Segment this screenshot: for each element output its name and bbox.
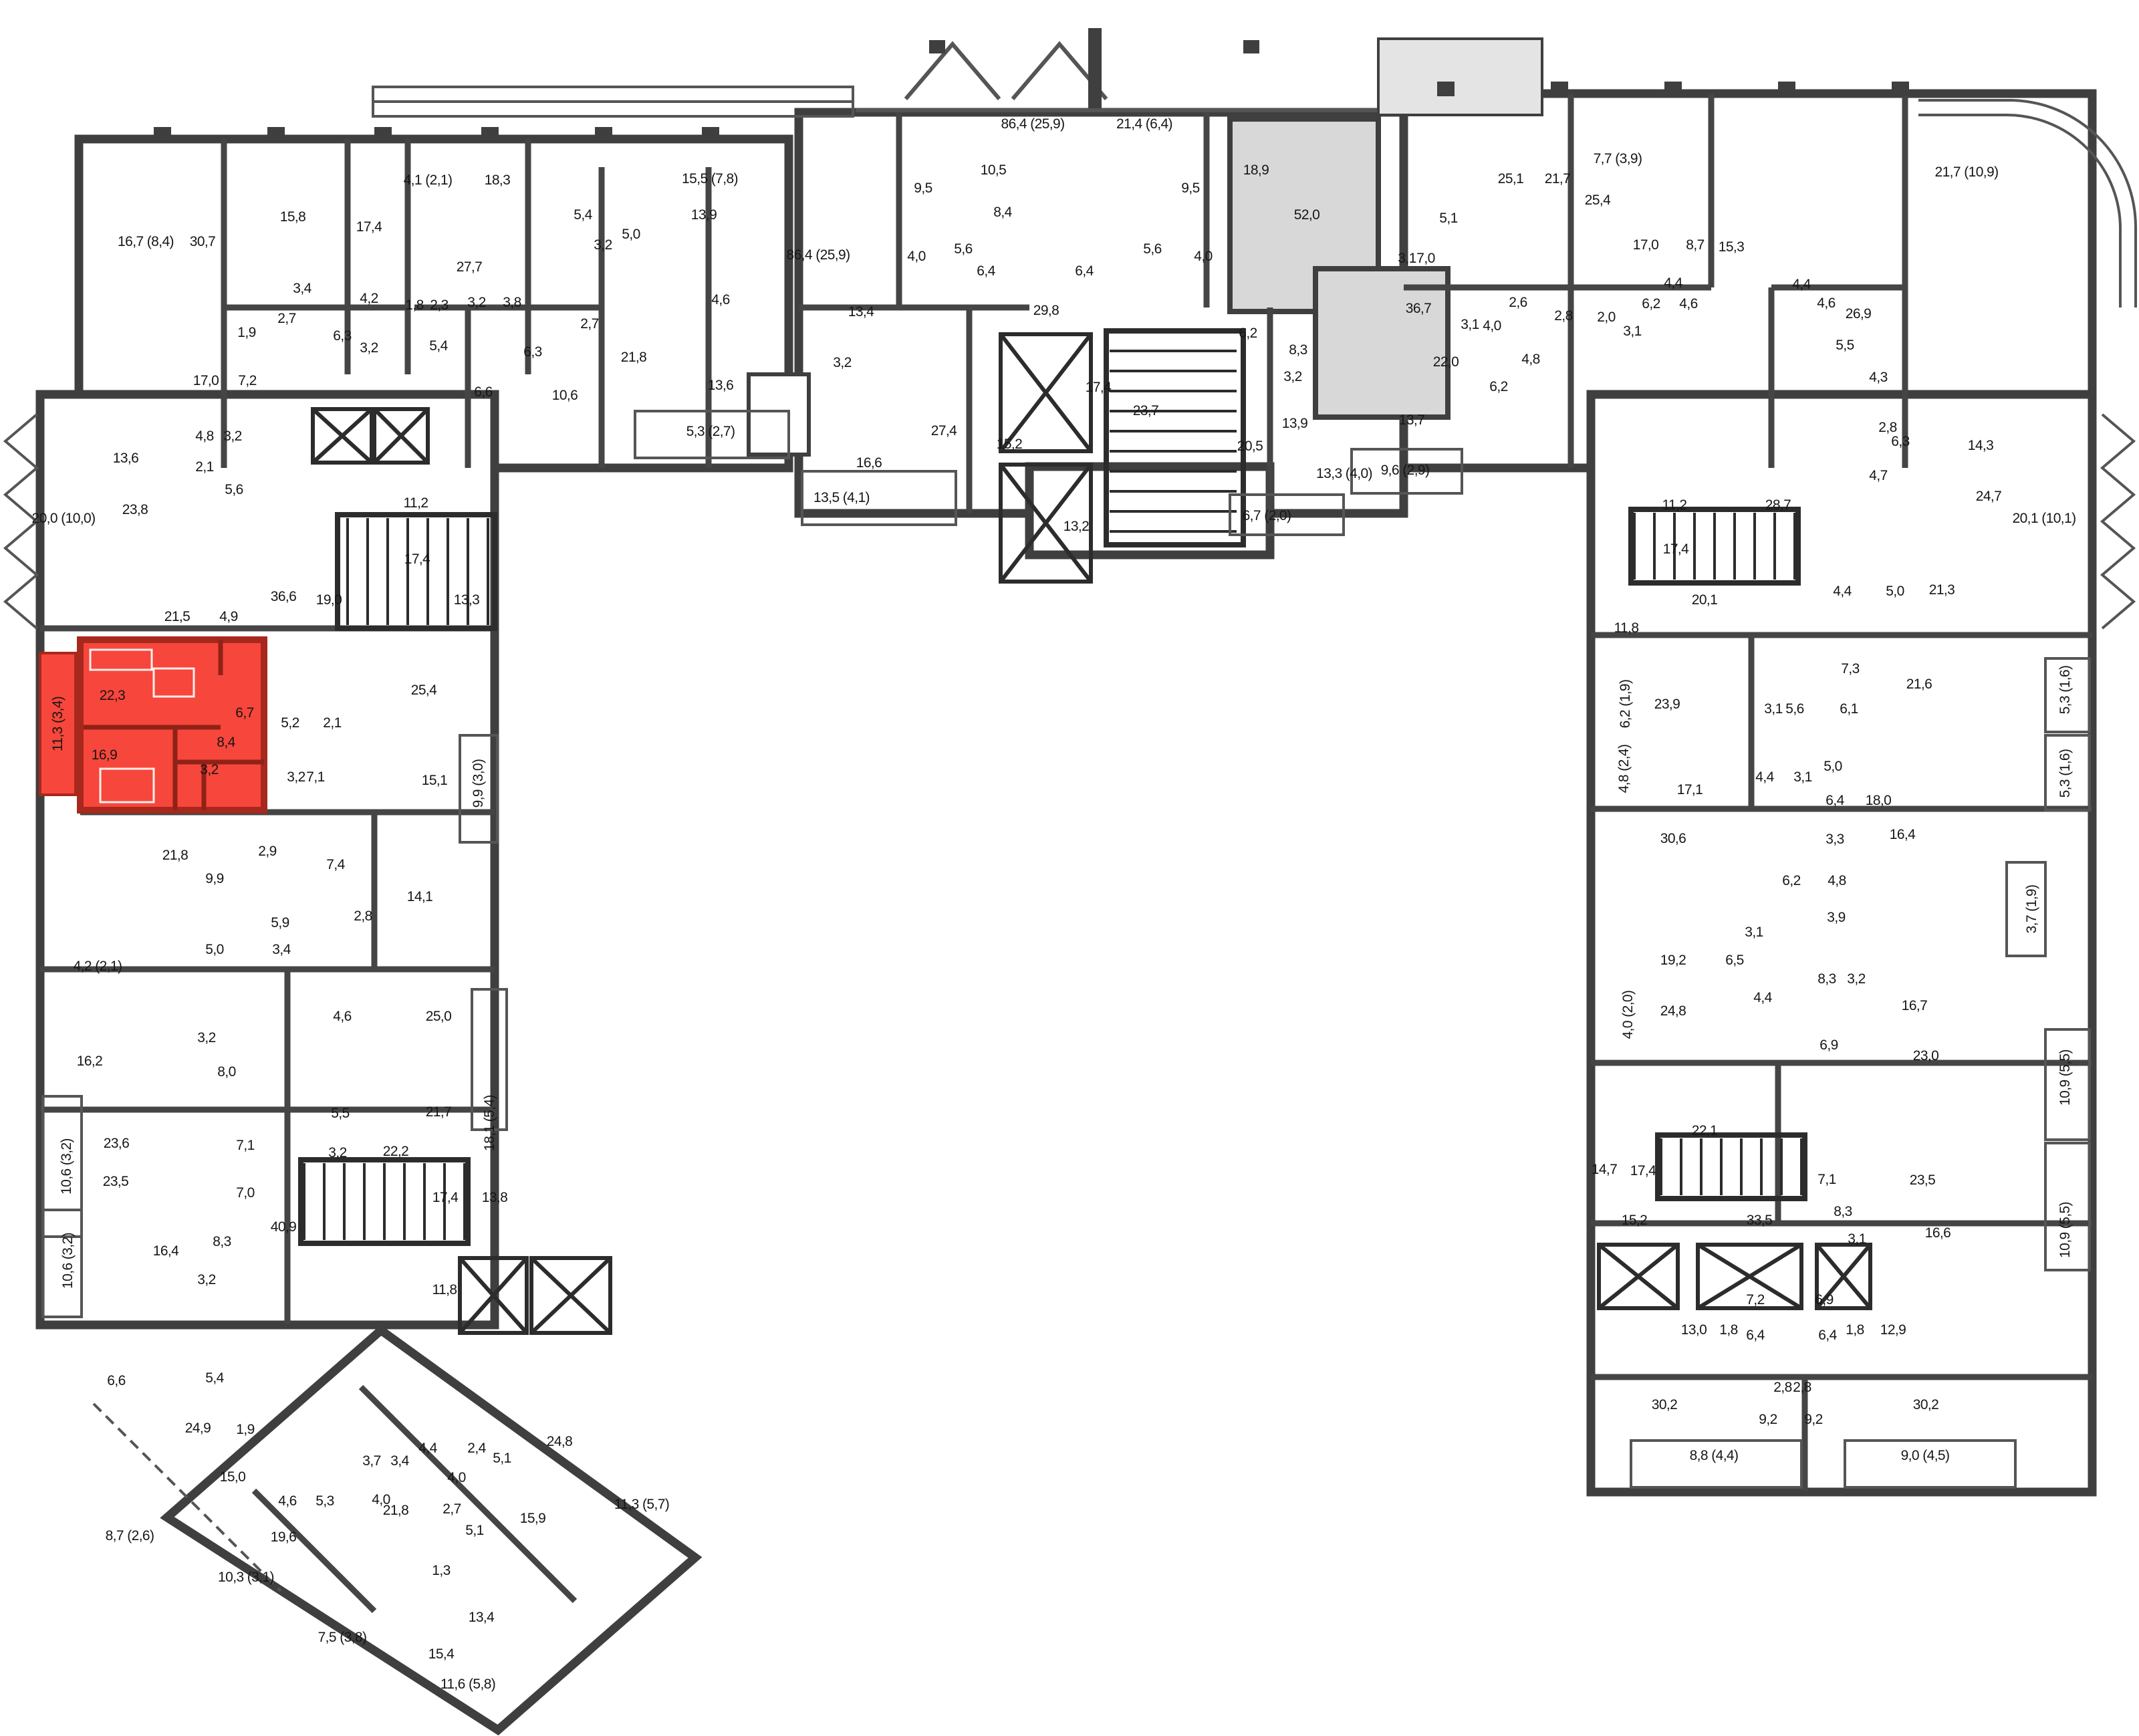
area-label: 17,0 [193,373,219,389]
area-label: 16,4 [1890,827,1915,843]
area-label: 2,1 [323,715,341,731]
area-label: 5,2 [281,715,299,731]
area-label: 4,6 [333,1009,351,1025]
area-label: 17,4 [432,1190,458,1206]
area-label: 15,0 [220,1469,245,1485]
area-label: 27,7 [457,259,482,275]
area-label: 86,4 (25,9) [787,247,850,263]
area-label: 23,6 [104,1136,129,1152]
area-label: 2,3 [430,297,448,314]
area-label: 30,7 [190,234,215,250]
area-label: 30,2 [1652,1397,1677,1413]
area-label: 18,1 (5,4) [482,1095,498,1151]
area-label: 19,2 [1660,953,1686,969]
area-label: 36,7 [1406,301,1431,317]
area-label: 11,8 [1614,620,1639,636]
area-label: 33,5 [1747,1213,1772,1229]
area-label: 16,4 [153,1243,178,1259]
area-label: 5,6 [1143,241,1161,257]
area-label: 29,8 [1033,303,1059,319]
area-label: 16,9 [92,747,117,763]
area-label: 5,9 [271,915,289,931]
area-label: 3,2 [197,1272,215,1288]
area-label: 3,2 [200,762,218,778]
area-label: 10,5 [981,162,1006,178]
area-label: 9,5 [1181,180,1199,197]
area-label: 5,6 [1785,701,1803,717]
area-label: 25,4 [411,683,436,699]
area-label: 4,4 [1753,990,1771,1006]
area-label: 3,8 [503,295,521,311]
area-label: 24,8 [1660,1003,1686,1019]
area-label: 9,2 [1804,1412,1822,1428]
area-label: 4,8 [1828,873,1846,889]
area-label: 7,0 [236,1185,254,1201]
area-label: 5,0 [205,942,223,958]
area-label: 2,7 [580,316,598,332]
area-label: 7,5 (3,8) [318,1630,367,1646]
area-label: 21,6 [1906,676,1932,693]
area-label: 3,2 [1283,369,1301,385]
area-label: 6,2 [1782,873,1800,889]
area-label: 3,9 [1827,910,1845,926]
area-label: 8,4 [217,735,235,751]
area-label: 16,2 [77,1053,102,1070]
area-label: 17,0 [1633,237,1658,253]
area-label: 3,2 [833,355,851,371]
area-label: 13,8 [482,1190,507,1206]
area-label: 8,3 [213,1234,231,1250]
area-label: 4,4 [1792,277,1810,293]
area-label: 9,0 (4,5) [1901,1448,1950,1464]
area-label: 25,0 [426,1009,451,1025]
area-label: 1,8 [1846,1322,1864,1338]
area-label: 6,9 [1819,1037,1838,1053]
area-label: 4,3 [1869,370,1887,386]
area-label: 2,4 [467,1441,485,1457]
area-label: 15,4 [428,1646,454,1662]
area-label: 3,2 [328,1145,346,1161]
area-label: 15,8 [280,209,305,225]
area-label: 6,5 [1725,953,1743,969]
area-label: 4,9 [219,609,237,625]
area-label: 7,2 [238,373,256,389]
area-label: 22,1 [1692,1123,1717,1139]
area-label: 6,4 [977,263,995,279]
area-label: 20,5 [1237,439,1263,455]
area-label: 3,4 [293,281,311,297]
area-label: 5,4 [205,1370,223,1386]
area-label: 23,0 [1913,1048,1938,1064]
area-label: 21,8 [162,848,188,864]
area-label: 3,7 (1,9) [2024,885,2040,934]
area-label: 8,3 [1817,971,1836,987]
area-label: 13,6 [113,451,138,467]
area-label: 21,7 [426,1104,451,1120]
area-label: 13,4 [848,304,874,320]
area-label: 4,0 [1483,318,1501,334]
area-label: 5,0 [622,227,640,243]
area-label: 5,0 [1886,584,1904,600]
area-label: 17,1 [1677,782,1703,798]
area-label: 7,1 [236,1138,254,1154]
area-label: 2,8 [1554,308,1572,324]
area-label: 5,1 [465,1523,483,1539]
area-label: 1,8 [1719,1322,1737,1338]
area-label: 8,3 [1834,1204,1852,1220]
area-label: 3,2 [360,340,378,356]
area-label: 4,4 [1755,769,1773,785]
area-label: 1,8 [405,297,423,314]
area-label: 4,4 [418,1441,436,1457]
area-label: 4,6 [1817,295,1835,312]
area-label: 86,4 (25,9) [1001,116,1065,132]
area-label: 6,4 [1826,793,1844,809]
area-label: 7,2 [1746,1292,1764,1308]
area-label: 25,1 [1498,171,1523,187]
area-label: 15,2 [1622,1213,1647,1229]
area-label: 4,7 [1869,468,1887,484]
area-label: 13,2 [1063,519,1089,535]
area-label: 22,2 [383,1144,408,1160]
area-label: 16,7 [1902,998,1927,1014]
floor-plan-canvas: 16,7 (8,4)30,715,817,44,1 (2,1)18,35,427… [0,0,2139,1736]
area-label: 10,6 [552,388,578,404]
area-label: 23,5 [103,1174,128,1190]
area-label: 14,3 [1968,438,1993,454]
area-label: 7,0 [1416,251,1434,267]
area-label: 21,4 (6,4) [1116,116,1172,132]
area-label: 21,8 [383,1503,408,1519]
area-label: 4,0 [907,249,925,265]
area-label: 25,4 [1585,193,1610,209]
area-label: 8,8 (4,4) [1690,1448,1739,1464]
area-label: 7,4 [326,857,344,873]
area-label: 22,3 [100,688,125,704]
area-label: 4,6 [278,1493,296,1509]
area-label: 13,5 (4,1) [813,490,870,506]
area-label: 17,4 [1086,380,1111,396]
area-label: 21,7 (10,9) [1935,164,1999,180]
area-label: 2,8 [354,908,372,924]
area-label: 5,4 [429,338,447,354]
area-label: 13,0 [1681,1322,1707,1338]
area-label: 13,4 [469,1610,494,1626]
area-label: 3,1 [1623,324,1641,340]
area-label: 15,1 [422,773,447,789]
area-label: 7,1 [306,769,324,785]
area-label: 4,6 [1679,296,1697,312]
area-label: 3,1 [1848,1231,1866,1247]
area-label: 17,4 [1663,541,1688,557]
area-label: 21,5 [164,609,190,625]
area-label: 6,2 [1239,326,1257,342]
area-label: 20,1 (10,1) [2013,511,2076,527]
area-label: 13,9 [1282,416,1307,432]
area-label: 6,1 [1840,701,1858,717]
area-label: 15,9 [520,1511,545,1527]
area-label: 18,0 [1866,793,1891,809]
area-label: 28,7 [1765,497,1791,513]
area-label: 5,5 [331,1106,349,1122]
area-label: 3,2 [467,295,485,311]
area-label: 6,3 [1891,434,1909,450]
area-label: 3,2 [223,428,241,445]
area-label: 4,2 [360,291,378,307]
area-label: 30,6 [1660,831,1686,847]
area-label: 21,3 [1929,582,1955,598]
area-label: 1,9 [236,1422,254,1438]
area-label: 5,4 [574,207,592,223]
area-label: 2,0 [1597,309,1615,326]
area-label: 9,9 [205,871,223,887]
area-label: 3,3 [1826,832,1844,848]
area-label: 15,2 [997,437,1022,453]
area-labels-layer: 16,7 (8,4)30,715,817,44,1 (2,1)18,35,427… [0,0,2139,1736]
area-label: 6,4 [1075,263,1093,279]
area-label: 3,2 [1847,971,1865,987]
area-label: 4,0 (2,0) [1620,991,1636,1039]
area-label: 13,6 [708,378,733,394]
area-label: 9,2 [1759,1412,1777,1428]
area-label: 13,7 [1399,412,1424,428]
area-label: 30,2 [1913,1397,1938,1413]
area-label: 16,6 [856,455,882,471]
area-label: 20,1 [1692,592,1717,608]
area-label: 6,4 [1746,1328,1764,1344]
area-label: 11,8 [432,1282,457,1298]
area-label: 5,5 [1836,338,1854,354]
area-label: 5,6 [954,241,972,257]
area-label: 17,4 [404,551,430,568]
area-label: 6,3 [523,344,541,360]
area-label: 9,9 (3,0) [471,759,487,808]
area-label: 16,6 [1925,1225,1951,1241]
area-label: 27,4 [931,423,957,439]
area-label: 23,5 [1910,1172,1935,1189]
area-label: 10,3 (3,1) [218,1570,274,1586]
area-label: 2,7 [443,1501,461,1517]
area-label: 5,6 [225,482,243,498]
area-label: 5,3 [316,1493,334,1509]
area-label: 14,1 [407,889,432,905]
area-label: 15,5 (7,8) [682,171,738,187]
area-label: 4,4 [1833,584,1851,600]
area-label: 3,2 [594,237,612,253]
area-label: 2,8 [1793,1380,1811,1396]
area-label: 21,8 [621,350,646,366]
area-label: 23,8 [122,502,148,518]
area-label: 24,9 [185,1420,211,1437]
area-label: 8,0 [217,1064,235,1080]
area-label: 21,7 [1545,171,1570,187]
area-label: 8,7 (2,6) [106,1528,154,1544]
area-label: 24,8 [547,1434,572,1450]
area-label: 14,7 [1592,1162,1617,1178]
area-label: 18,9 [1243,162,1269,178]
area-label: 4,4 [1664,275,1682,291]
area-label: 23,7 [1133,403,1158,419]
area-label: 6,7 (2,0) [1243,508,1291,524]
area-label: 19,0 [316,592,342,608]
area-label: 4,0 [447,1470,465,1486]
area-label: 3,1 [1793,769,1811,785]
area-label: 4,1 (2,1) [404,172,453,189]
area-label: 16,7 (8,4) [118,234,174,250]
area-label: 1,9 [237,325,255,341]
area-label: 3,1 [1745,924,1763,941]
area-label: 8,4 [993,205,1011,221]
area-label: 6,2 (1,9) [1618,680,1634,729]
area-label: 11,2 [404,495,428,511]
area-label: 6,6 [474,384,492,400]
area-label: 10,9 (5,5) [2057,1202,2073,1258]
area-label: 10,6 (3,2) [59,1138,75,1195]
area-label: 1,3 [432,1563,450,1579]
area-label: 3,1 [1764,701,1782,717]
area-label: 18,3 [485,172,510,189]
area-label: 3,1 [1461,317,1479,333]
area-label: 3,1 [1398,251,1416,267]
area-label: 5,3 (1,6) [2057,749,2073,798]
area-label: 2,9 [258,844,276,860]
area-label: 11,3 (3,4) [50,697,66,751]
area-label: 52,0 [1294,207,1319,223]
area-label: 6,7 [235,705,253,721]
area-label: 4,8 [1521,352,1539,368]
area-label: 13,3 (4,0) [1316,466,1372,482]
area-label: 6,9 [1815,1292,1833,1308]
area-label: 3,2 [197,1030,215,1046]
area-label: 22,0 [1433,354,1459,370]
area-label: 4,2 (2,1) [74,959,122,975]
area-label: 5,0 [1823,759,1842,775]
area-label: 7,1 [1817,1172,1836,1188]
area-label: 6,2 [1489,379,1507,395]
area-label: 9,5 [914,180,932,197]
area-label: 36,6 [271,589,296,605]
area-label: 4,6 [711,292,729,308]
area-label: 5,1 [1439,211,1457,227]
area-label: 19,6 [271,1529,296,1545]
area-label: 2,8 [1773,1380,1791,1396]
area-label: 3,4 [272,942,290,958]
area-label: 7,7 (3,9) [1594,151,1642,167]
area-label: 5,3 (2,7) [686,424,735,440]
area-label: 26,9 [1846,306,1871,322]
area-label: 11,6 (5,8) [441,1677,495,1693]
area-label: 24,7 [1976,489,2001,505]
area-label: 10,6 (3,2) [60,1233,76,1289]
area-label: 11,3 (5,7) [614,1497,669,1513]
area-label: 17,4 [1630,1163,1656,1179]
area-label: 6,4 [1818,1328,1836,1344]
area-label: 9,6 (2,9) [1381,463,1430,479]
area-label: 2,1 [195,459,213,475]
area-label: 13,3 [454,592,479,608]
area-label: 4,8 (2,4) [1616,745,1632,793]
area-label: 40,9 [271,1219,296,1235]
area-label: 20,0 (10,0) [32,511,96,527]
area-label: 5,3 (1,6) [2057,666,2073,715]
area-label: 23,9 [1654,697,1680,713]
area-label: 6,2 [1642,296,1660,312]
area-label: 15,3 [1719,239,1744,255]
area-label: 8,7 [1686,237,1704,253]
area-label: 2,6 [1509,295,1527,311]
area-label: 4,8 [195,428,213,445]
area-label: 6,3 [333,328,351,344]
area-label: 5,1 [493,1451,511,1467]
area-label: 17,4 [356,219,382,235]
area-label: 8,3 [1289,342,1307,358]
area-label: 12,9 [1880,1322,1906,1338]
area-label: 13,9 [691,207,717,223]
area-label: 3,7 [362,1453,380,1469]
area-label: 2,7 [277,311,295,327]
area-label: 3,4 [390,1453,408,1469]
area-label: 10,9 (5,5) [2057,1049,2073,1106]
area-label: 7,3 [1841,661,1859,677]
area-label: 11,2 [1662,497,1687,513]
area-label: 3,2 [287,769,305,785]
area-label: 6,6 [107,1373,125,1389]
area-label: 4,0 [1194,249,1212,265]
